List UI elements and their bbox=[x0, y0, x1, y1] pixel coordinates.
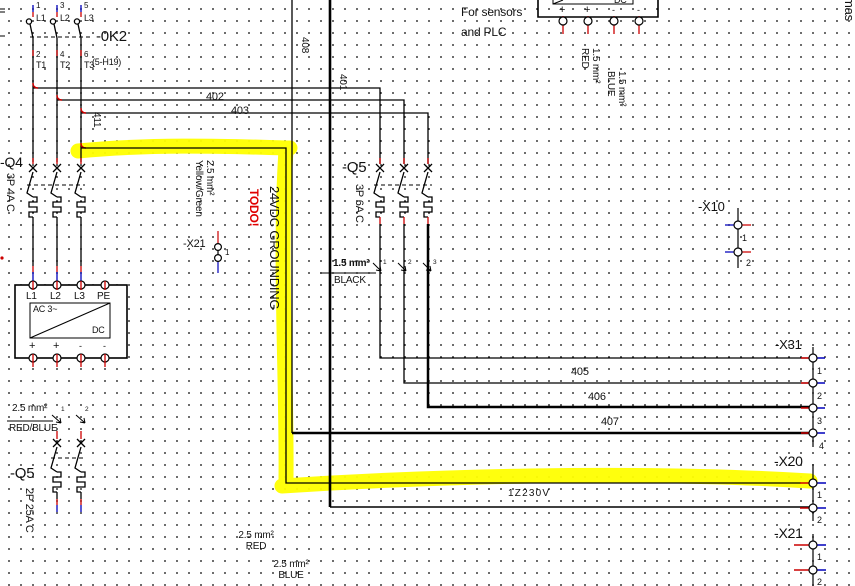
wire-spec-red-15: 1.5 mm²RED bbox=[579, 48, 601, 83]
ps-left-polarity: - bbox=[103, 341, 106, 351]
wire-spec-color: RED bbox=[579, 48, 590, 69]
ferrule-mid-color: BLACK bbox=[334, 275, 366, 286]
wire-spec-blue-25: 2.5 mm²BLUE bbox=[260, 559, 322, 581]
ps-left-terminal-label: L2 bbox=[50, 291, 61, 302]
wire-spec-color: BLUE bbox=[278, 570, 303, 581]
wire-number-411: 411 bbox=[91, 112, 102, 127]
k2-pin-label: L2 bbox=[60, 13, 70, 23]
terminal-x20[interactable] bbox=[800, 464, 826, 521]
q4-spec: 3P 4A C bbox=[4, 173, 16, 212]
x10-pin: 2 bbox=[746, 258, 751, 268]
ps-left-terminal-label: L1 bbox=[26, 291, 37, 302]
ferrule-mid-size: 1.5 mm² bbox=[333, 258, 369, 269]
ferrule-mid-pin: 1 bbox=[383, 259, 386, 266]
x21-bottom-name: -X21 bbox=[774, 526, 803, 542]
k2-pin: 5 bbox=[84, 2, 88, 11]
page-edge-text: mas bbox=[841, 0, 855, 21]
wire-spec-color: RED bbox=[246, 541, 267, 552]
k2-pin-label: L1 bbox=[36, 13, 46, 23]
x21-bottom-pin: 2 bbox=[817, 577, 822, 586]
ps-right-polarity: + bbox=[559, 4, 565, 16]
ps-right-polarity: - bbox=[637, 5, 640, 15]
k2-pin: 1 bbox=[36, 2, 40, 11]
k2-pin: 4 bbox=[60, 51, 64, 60]
wire-number-408: 408 bbox=[299, 37, 310, 53]
ps-right-note-line2: and PLC bbox=[461, 26, 506, 39]
ferrule-mid-pin: 2 bbox=[408, 259, 411, 266]
k2-ref: (5-H19) bbox=[92, 57, 121, 67]
ps-left-polarity: + bbox=[53, 340, 59, 352]
wire-spec-blue-15: 1.5 mm²BLUE bbox=[605, 71, 627, 106]
x20-pin: 2 bbox=[817, 515, 822, 525]
wire-spec-size: 1.5 mm² bbox=[616, 71, 627, 106]
page-edge-marks bbox=[0, 9, 5, 260]
wire-number-405: 405 bbox=[571, 366, 589, 378]
wire-marker-left bbox=[7, 415, 85, 423]
ferrule-mid-pin: 3 bbox=[433, 259, 436, 266]
k2-pin: 3 bbox=[60, 2, 64, 11]
highlight-grounding-path bbox=[78, 146, 810, 486]
x31-pin: 1 bbox=[817, 366, 822, 376]
breaker-q4[interactable] bbox=[27, 158, 85, 281]
ps-right-polarity: + bbox=[584, 4, 590, 16]
k2-pin-label: T1 bbox=[36, 60, 46, 70]
k2-pin-label: L3 bbox=[84, 13, 94, 23]
wire-spec-size: 2.5 mm² bbox=[273, 559, 308, 570]
schematic-page: -0K2 (5-H19) 1 L1 3 L2 5 L3 2 T1 4 T2 6 … bbox=[0, 0, 855, 586]
wire-spec-size: 2.5 mm² bbox=[204, 160, 215, 195]
ferrule-left-pin: 2 bbox=[85, 406, 88, 413]
ps-right-note-line1: For sensors bbox=[461, 6, 522, 19]
wire-number-406: 406 bbox=[588, 391, 606, 403]
k2-pin-label: T3 bbox=[84, 60, 94, 70]
k2-pin: 6 bbox=[84, 51, 88, 60]
ferrule-left-color: RED/BLUE bbox=[9, 423, 57, 434]
contactor-0k2[interactable] bbox=[26, 5, 90, 162]
q5-bottom-name: -Q5 bbox=[10, 466, 34, 483]
schematic-canvas[interactable] bbox=[0, 0, 855, 586]
x10-name: -X10 bbox=[698, 200, 725, 215]
wire-number-403: 403 bbox=[231, 105, 249, 117]
x21-mid-pin: 1 bbox=[225, 249, 229, 258]
x31-pin: 3 bbox=[817, 416, 822, 426]
wire-number-402: 402 bbox=[206, 91, 224, 103]
ps-left-ac-label: AC 3~ bbox=[33, 304, 57, 314]
x20-pin: 1 bbox=[817, 490, 822, 500]
wire-number-407: 407 bbox=[601, 416, 619, 428]
distribution-wires[interactable] bbox=[292, 0, 809, 507]
wire-spec-yellow-green: 2.5 mm²Yellow/Green bbox=[193, 160, 215, 217]
wire-spec-size: 1.5 mm² bbox=[590, 48, 601, 83]
q5-bottom-spec: 2P 25A C bbox=[23, 488, 35, 533]
ps-left-terminal-label: L3 bbox=[74, 291, 85, 302]
ps-left-polarity: - bbox=[79, 341, 82, 351]
ferrule-left-size: 2.5 mm² bbox=[12, 403, 47, 414]
k2-pin-label: T2 bbox=[60, 60, 70, 70]
x31-pin: 4 bbox=[819, 441, 824, 451]
wire-spec-color: Yellow/Green bbox=[193, 160, 204, 217]
ps-left-dc-label: DC bbox=[92, 325, 105, 335]
wire-number-1z230v: 1Z230V bbox=[508, 488, 550, 499]
ps-left-terminal-label: PE bbox=[97, 291, 110, 302]
x21-bottom-pin: 1 bbox=[817, 552, 822, 562]
q4-name: -Q4 bbox=[0, 155, 23, 171]
power-supply-right[interactable] bbox=[538, 0, 658, 34]
k2-pin: 2 bbox=[36, 51, 40, 60]
q5-mid-name: -Q5 bbox=[342, 160, 366, 177]
todo-annotation: TODO! bbox=[247, 189, 260, 226]
x10-pin: 1 bbox=[742, 233, 747, 243]
ps-right-polarity: - bbox=[612, 5, 615, 15]
ferrule-left-pin: 1 bbox=[61, 406, 64, 413]
grounding-annotation: 24VDC GROUNDING bbox=[266, 186, 281, 309]
x21-mid-name: -X21 bbox=[183, 238, 205, 250]
wire-number-401: 401 bbox=[337, 74, 348, 90]
ps-right-dc-label: DC bbox=[614, 0, 627, 5]
wire-spec-color: BLUE bbox=[605, 71, 616, 96]
x20-name: -X20 bbox=[774, 454, 803, 470]
q5-mid-spec: 3P 6A C bbox=[353, 184, 365, 223]
wire-spec-red-25: 2.5 mm²RED bbox=[225, 530, 287, 552]
breaker-q5-bottom[interactable] bbox=[51, 431, 85, 512]
ps-left-polarity: + bbox=[29, 340, 35, 352]
terminal-x21-mid[interactable] bbox=[215, 231, 222, 273]
wire-spec-size: 2.5 mm² bbox=[238, 530, 273, 541]
x31-pin: 2 bbox=[817, 391, 822, 401]
breaker-q5-mid[interactable] bbox=[374, 158, 432, 224]
k2-name: -0K2 bbox=[96, 29, 127, 46]
x31-name: -X31 bbox=[775, 338, 802, 353]
